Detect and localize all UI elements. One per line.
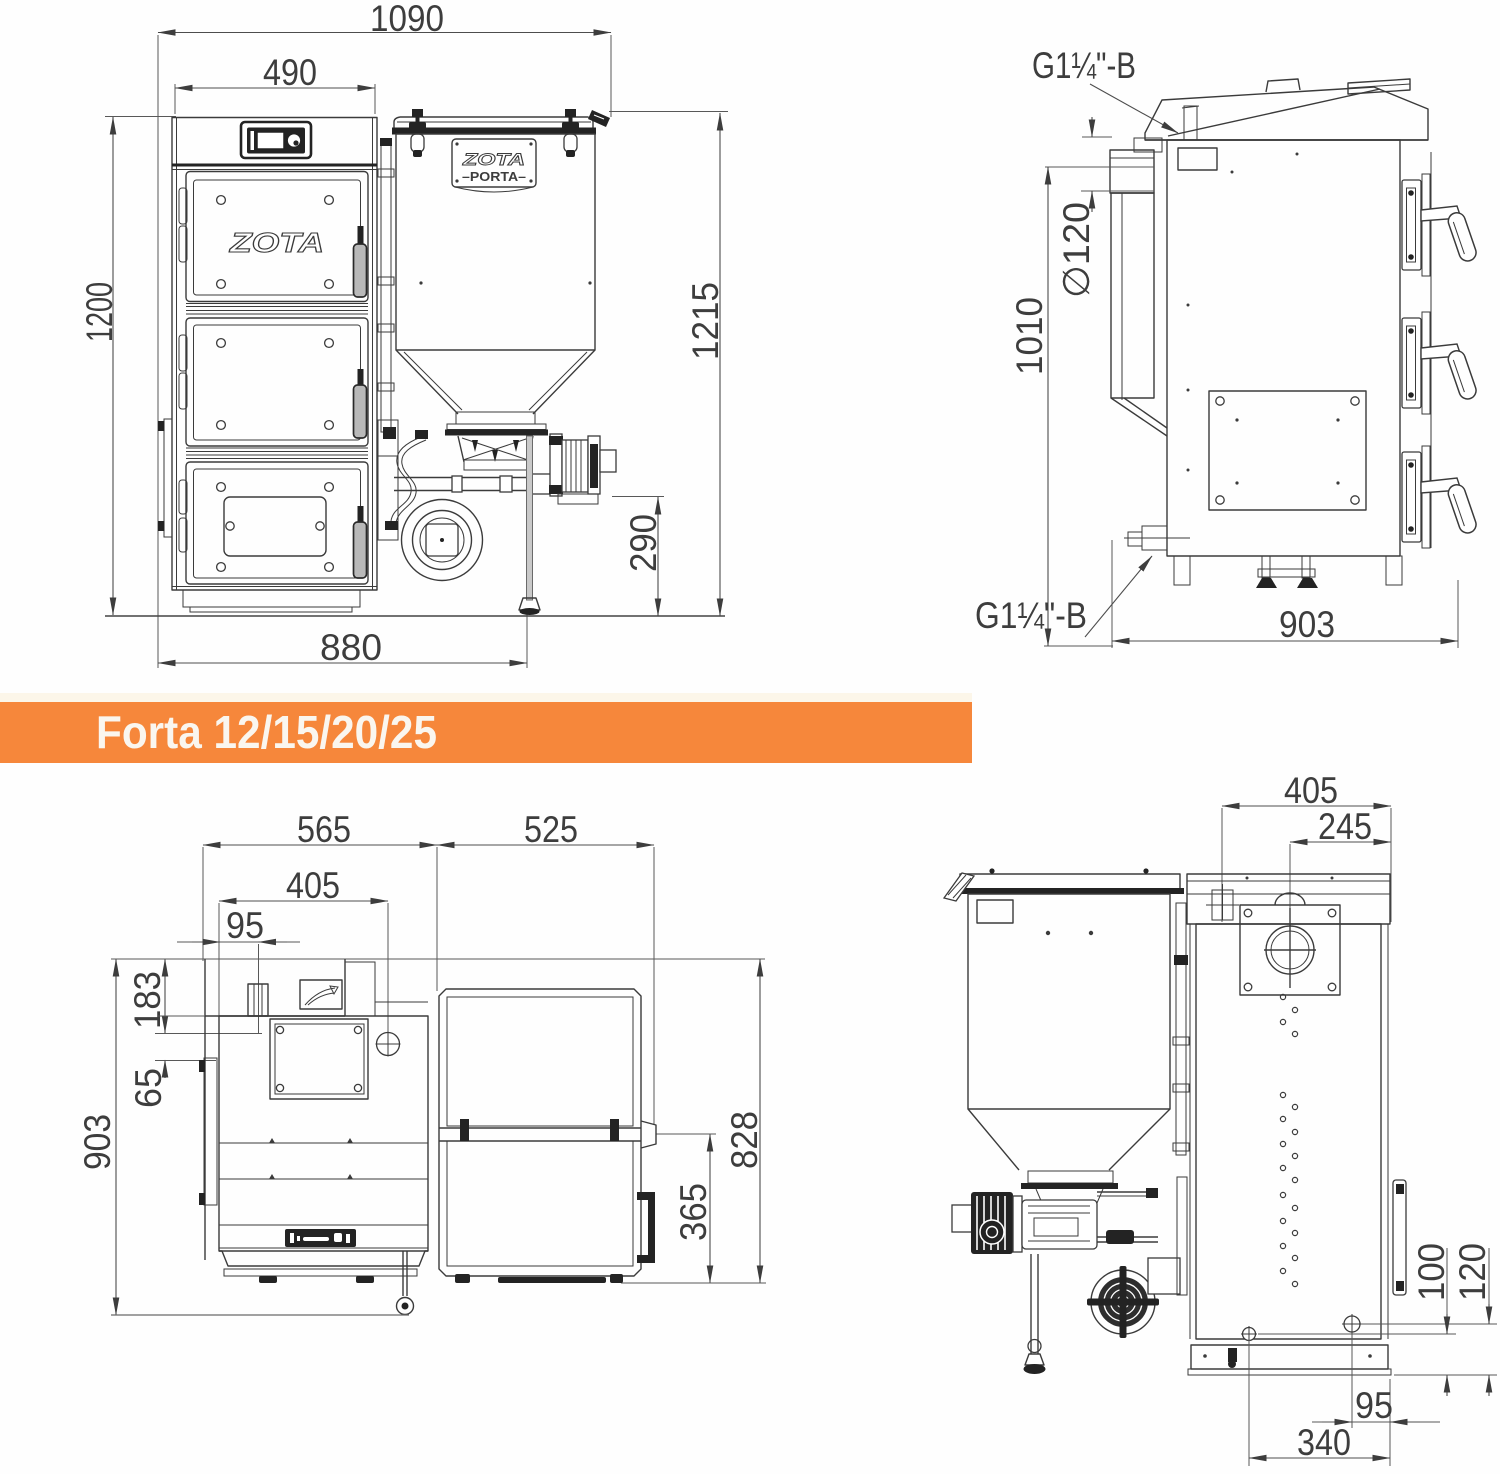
svg-text:565: 565	[297, 809, 351, 850]
svg-text:183: 183	[127, 971, 168, 1029]
svg-text:903: 903	[1279, 604, 1335, 645]
svg-text:1090: 1090	[370, 0, 444, 39]
svg-text:490: 490	[263, 52, 317, 93]
svg-text:525: 525	[524, 809, 578, 850]
svg-text:120: 120	[1452, 1243, 1493, 1301]
svg-text:95: 95	[1355, 1385, 1393, 1426]
svg-text:903: 903	[77, 1114, 118, 1170]
svg-text:G1¼"-B: G1¼"-B	[1032, 45, 1136, 86]
svg-text:65: 65	[128, 1068, 169, 1108]
svg-text:245: 245	[1318, 806, 1372, 847]
svg-text:405: 405	[286, 865, 340, 906]
svg-text:828: 828	[724, 1111, 765, 1169]
svg-text:ZOTA: ZOTA	[462, 150, 525, 169]
svg-text:∅120: ∅120	[1056, 202, 1097, 298]
svg-text:880: 880	[320, 627, 382, 668]
svg-text:1010: 1010	[1009, 297, 1050, 375]
svg-text:1200: 1200	[79, 282, 120, 342]
svg-text:G1¼"-B: G1¼"-B	[975, 595, 1087, 636]
svg-text:ZOTA: ZOTA	[229, 227, 324, 258]
svg-text:100: 100	[1411, 1243, 1452, 1301]
svg-text:95: 95	[226, 905, 264, 946]
svg-text:340: 340	[1297, 1422, 1351, 1463]
svg-text:365: 365	[673, 1183, 714, 1241]
svg-text:405: 405	[1284, 770, 1338, 811]
svg-text:290: 290	[623, 514, 664, 572]
svg-text:1215: 1215	[685, 282, 726, 360]
svg-text:–PORTA–: –PORTA–	[462, 170, 526, 184]
svg-text:Forta 12/15/20/25: Forta 12/15/20/25	[96, 706, 437, 758]
